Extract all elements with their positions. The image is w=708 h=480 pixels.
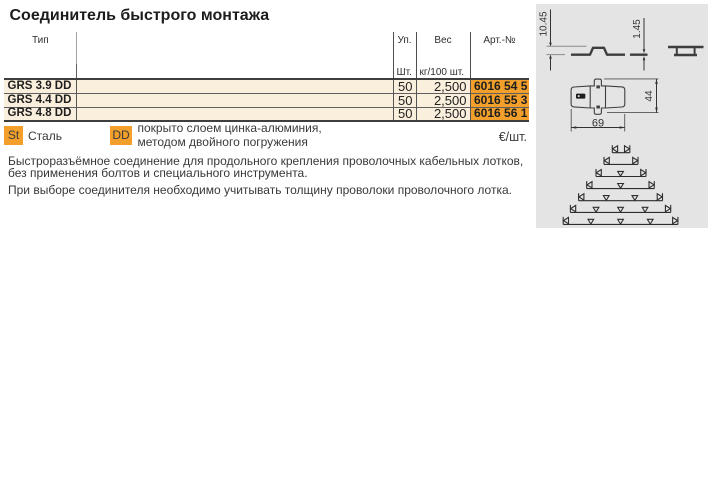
svg-text:10.45: 10.45 <box>539 11 550 36</box>
svg-text:1.45: 1.45 <box>632 19 643 39</box>
svg-text:69: 69 <box>592 117 604 129</box>
svg-text:44: 44 <box>644 90 655 102</box>
